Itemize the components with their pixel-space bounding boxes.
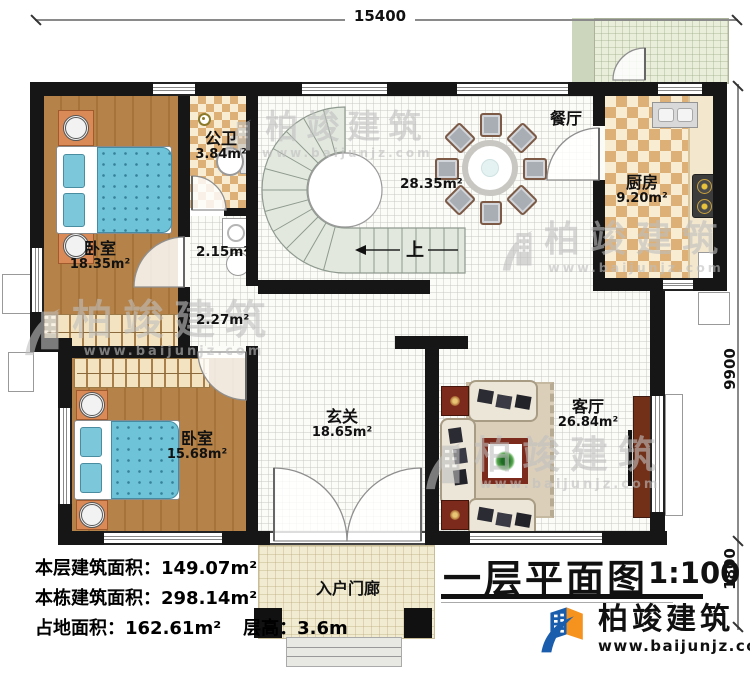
- door-opening: [190, 208, 224, 216]
- dining-chair: [480, 201, 502, 225]
- window-sill: [2, 274, 32, 314]
- brand-website: www.baijunjz.com: [598, 639, 750, 654]
- entrance-opening: [270, 531, 425, 545]
- window: [470, 531, 602, 545]
- patio-floor: [572, 18, 729, 84]
- bed-bedroom1: [56, 146, 172, 234]
- nightstand: [76, 500, 108, 530]
- room-label-living: 客厅 26.84m²: [550, 398, 626, 430]
- lamp-icon: [79, 392, 105, 418]
- dimension-width: 15400: [345, 7, 415, 25]
- pillow: [63, 193, 85, 227]
- stat-row: 本栋建筑面积：298.14m²: [35, 584, 348, 614]
- table-center: [481, 159, 499, 177]
- area-label-laundry: 2.15m²: [196, 244, 249, 260]
- door-opening: [178, 237, 190, 287]
- drawing-scale: 1:100: [648, 556, 740, 590]
- room-label-kitchen: 厨房 9.20m²: [610, 174, 674, 206]
- sofa-top: [468, 380, 538, 422]
- floor-plan-canvas: 卧室 18.35m² 公卫 3.84m² 2.15m² 2.27m² 餐厅 28…: [0, 0, 750, 673]
- window: [153, 82, 195, 96]
- stat-row: 本层建筑面积：149.07m²: [35, 554, 348, 584]
- plant-icon: [495, 451, 515, 471]
- room-label-bedroom2: 卧室 15.68m²: [164, 430, 230, 462]
- wardrobe-bedroom2: [74, 358, 210, 388]
- window: [650, 396, 665, 512]
- wall: [713, 82, 727, 291]
- window: [58, 408, 72, 504]
- brand-text: 柏竣建筑 www.baijunjz.com: [598, 605, 750, 654]
- pillow: [80, 463, 102, 493]
- duvet: [97, 147, 172, 233]
- stair-up-label: 上: [406, 236, 424, 262]
- room-label-dining: 餐厅: [536, 110, 596, 128]
- dining-chair: [480, 113, 502, 137]
- room-label-bedroom1: 卧室 18.35m²: [66, 240, 134, 272]
- area-statistics: 本层建筑面积：149.07m² 本栋建筑面积：298.14m² 占地面积：162…: [35, 554, 348, 644]
- wall: [593, 278, 727, 291]
- window: [457, 82, 568, 96]
- wall: [178, 96, 190, 350]
- brand-name: 柏竣建筑: [598, 605, 750, 635]
- door-opening: [593, 126, 605, 180]
- dining-chair: [523, 158, 547, 180]
- room-label-foyer: 玄关 18.65m²: [302, 408, 382, 440]
- room-label-bathroom: 公卫 3.84m²: [192, 130, 250, 162]
- brand-logo-icon: [536, 602, 590, 656]
- pillow: [63, 154, 85, 188]
- wall: [246, 346, 258, 545]
- wall: [258, 280, 430, 294]
- window-sill: [698, 292, 730, 325]
- stat-row: 占地面积：162.61m²层高：3.6m: [35, 614, 348, 644]
- patio-step-strip: [572, 18, 595, 82]
- window-sill: [8, 352, 34, 392]
- title-underline: [441, 594, 703, 599]
- nightstand: [58, 110, 94, 146]
- area-label-corridor: 2.27m²: [196, 312, 249, 328]
- side-table: [441, 500, 469, 530]
- lamp-icon: [79, 502, 105, 528]
- pillow: [80, 427, 102, 457]
- window: [30, 248, 44, 312]
- tv-icon: [628, 430, 632, 486]
- light-fixture-icon: [198, 113, 211, 126]
- area-label-dining: 28.35m²: [400, 176, 463, 192]
- window-sill: [665, 394, 683, 516]
- lamp-icon: [63, 115, 89, 141]
- window: [658, 82, 702, 96]
- wall: [425, 336, 439, 531]
- window: [104, 531, 222, 545]
- coffee-table: [482, 438, 528, 484]
- kitchen-sink: [652, 102, 698, 128]
- nightstand: [76, 390, 108, 420]
- side-table: [441, 386, 469, 416]
- porch-column: [404, 608, 432, 638]
- door-opening: [198, 346, 246, 358]
- brand-logo: 柏竣建筑 www.baijunjz.com: [536, 602, 750, 656]
- tv-cabinet: [633, 396, 651, 518]
- window: [663, 278, 693, 291]
- sofa-left: [440, 418, 476, 506]
- dimension-height-main: 9900: [721, 339, 739, 399]
- window: [302, 82, 387, 96]
- dining-table: [462, 140, 518, 196]
